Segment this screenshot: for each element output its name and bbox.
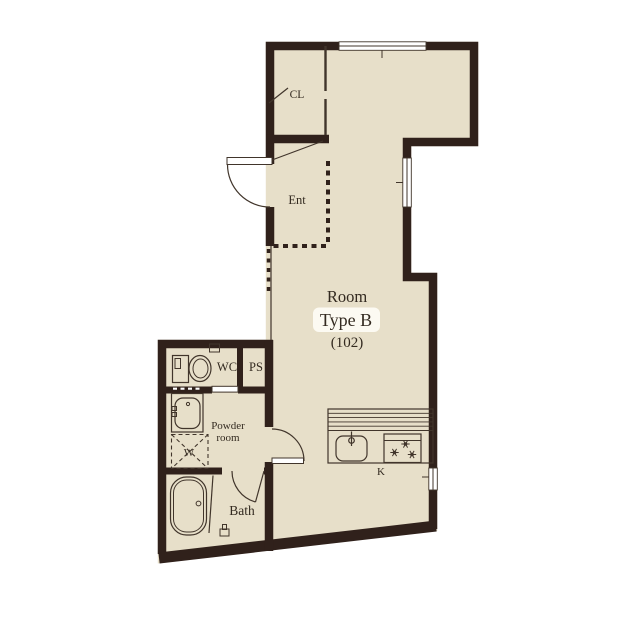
pipe-shaft-label: PS bbox=[249, 360, 263, 374]
bathroom-label: Bath bbox=[229, 503, 255, 518]
toilet-label: WC bbox=[217, 360, 237, 374]
room-label: Room bbox=[327, 287, 368, 306]
washer-label: W bbox=[184, 447, 195, 459]
kitchen-label: K bbox=[377, 466, 385, 478]
closet-label: CL bbox=[290, 89, 305, 101]
room-unit-label: (102) bbox=[331, 335, 364, 351]
powder-room-label-line2: room bbox=[216, 432, 240, 444]
floor-plan-page: Room Type B (102) CL Ent WC PS Powder ro… bbox=[0, 0, 640, 640]
entrance-door bbox=[227, 158, 272, 208]
room-type-label: Type B bbox=[320, 310, 372, 330]
powder-room-label-line1: Powder bbox=[211, 420, 245, 432]
floor-plan: Room Type B (102) CL Ent WC PS Powder ro… bbox=[0, 0, 640, 640]
entrance-label: Ent bbox=[288, 193, 306, 207]
